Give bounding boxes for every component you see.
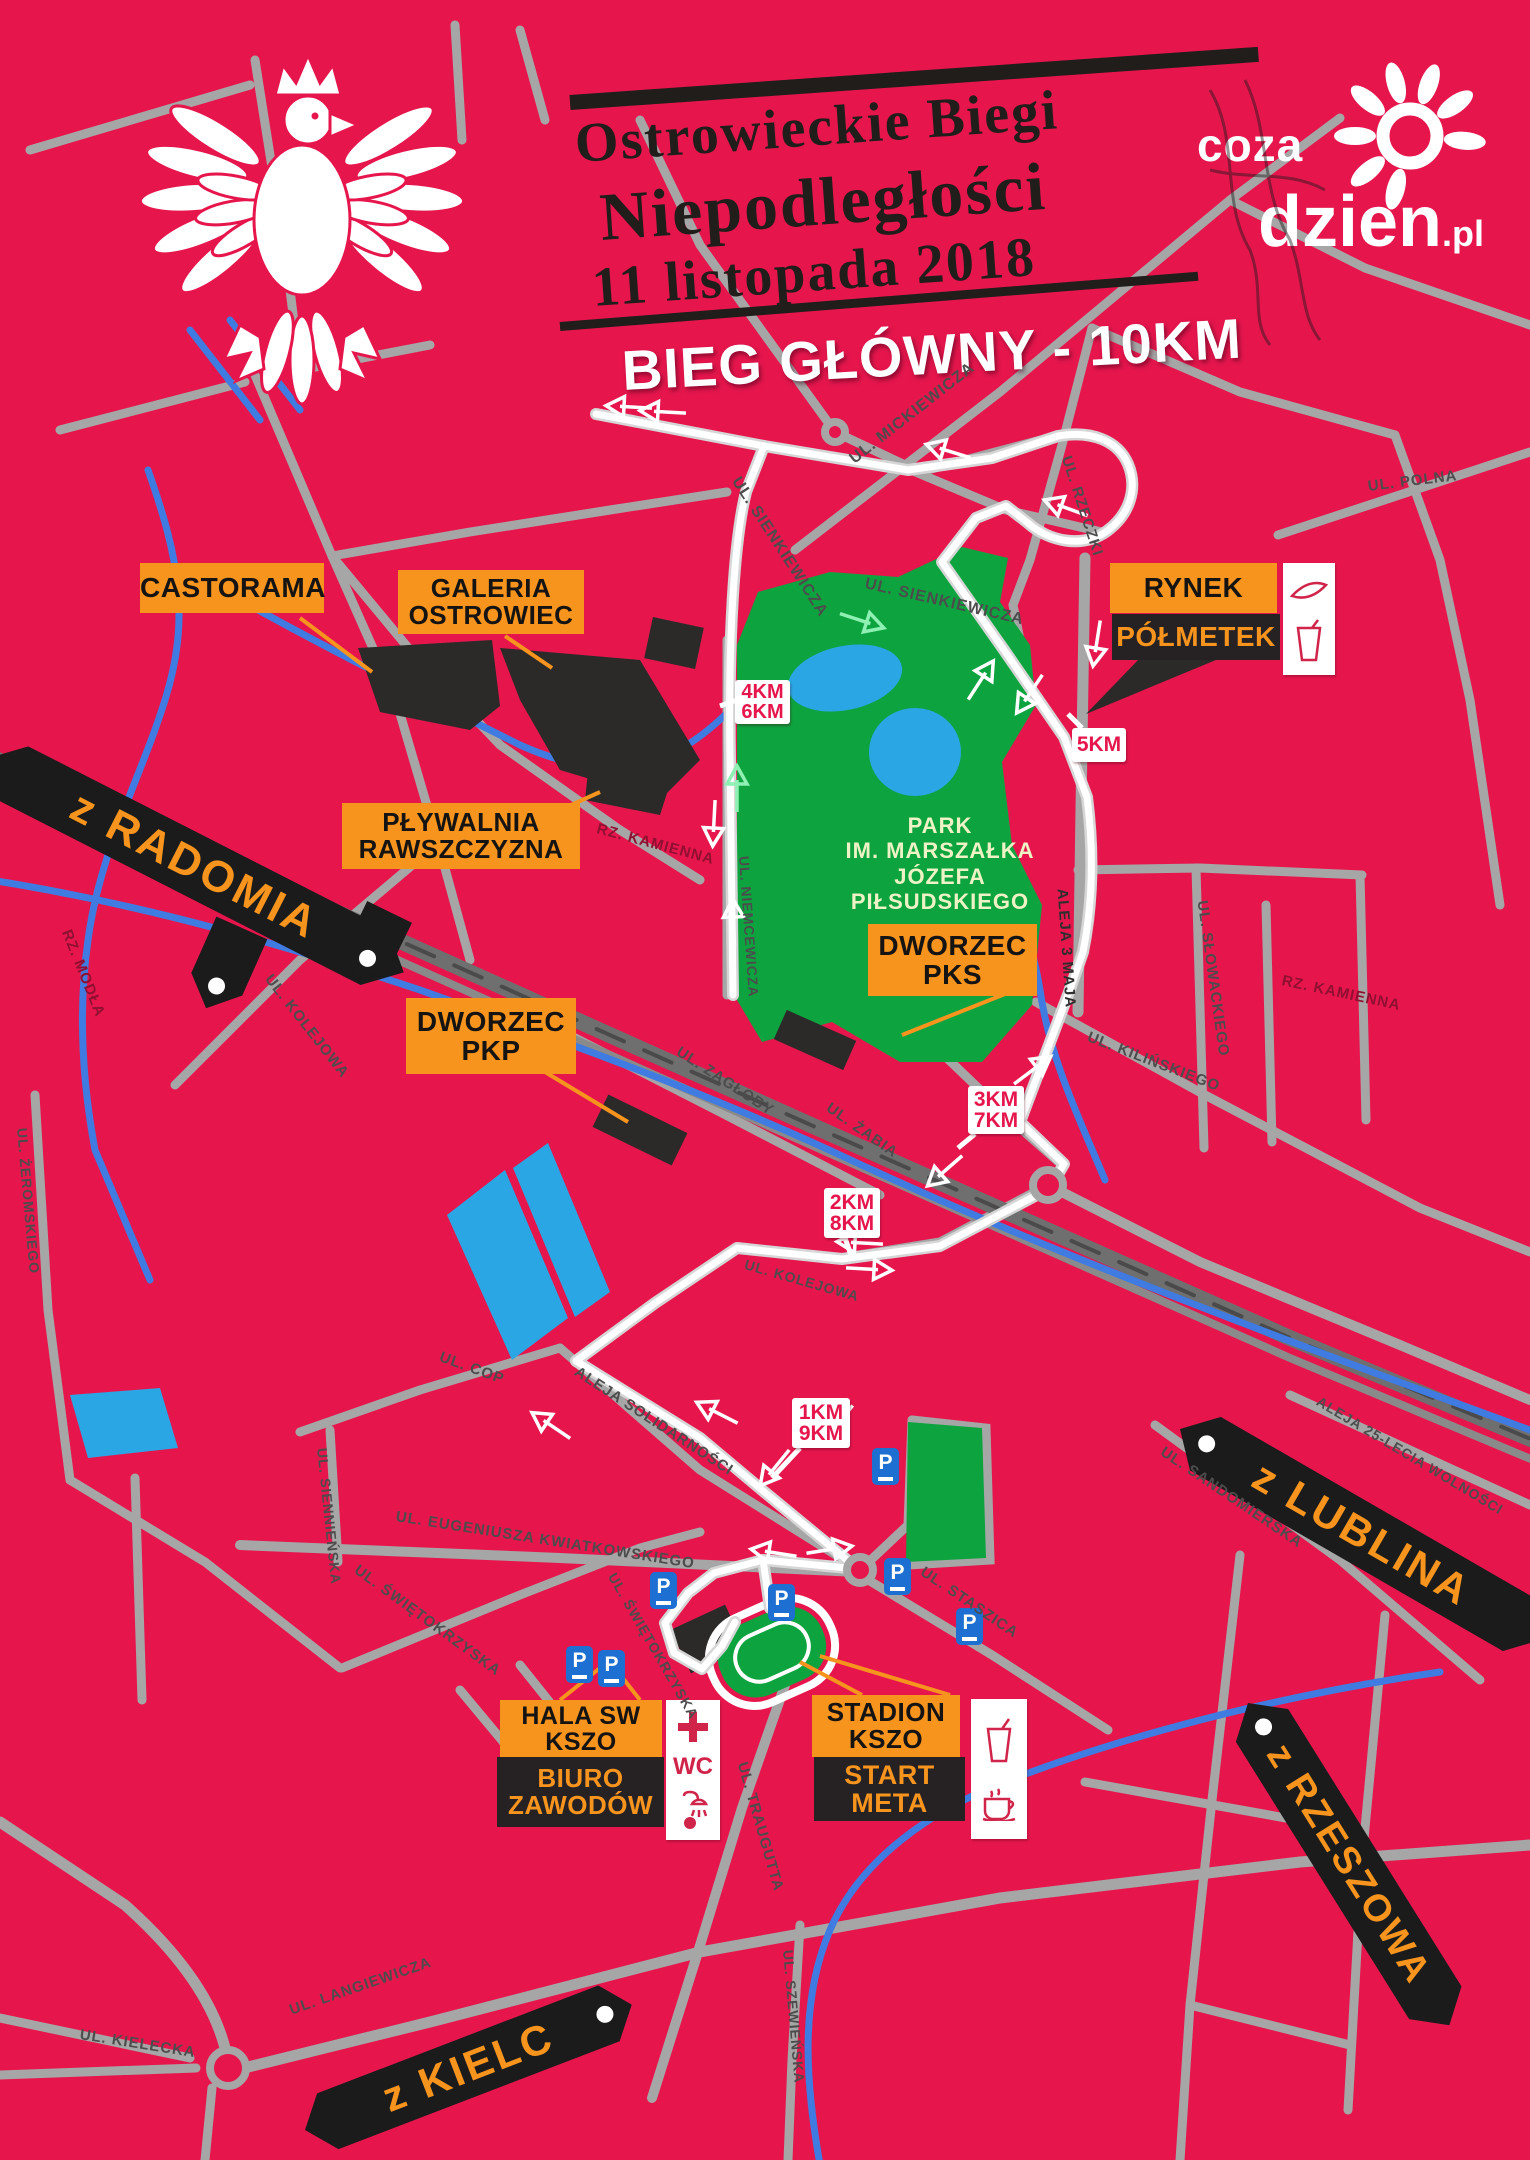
banner-hole xyxy=(1195,1432,1218,1455)
km-text: 1KM xyxy=(792,1402,850,1423)
banner-hole xyxy=(356,947,379,970)
km-marker-1-9: 1KM 9KM xyxy=(792,1398,850,1448)
shower-icon xyxy=(678,1790,708,1830)
poi-galeria-ostrowiec: GALERIA OSTROWIEC xyxy=(398,570,584,634)
km-marker-3-7: 3KM 7KM xyxy=(968,1086,1024,1134)
castorama-building xyxy=(358,640,500,730)
wc-label: WC xyxy=(673,1753,713,1781)
banner-hole xyxy=(594,2003,616,2025)
lakes-layer xyxy=(70,1143,610,1458)
parking-icon: P xyxy=(598,1650,625,1687)
km-text: 2KM xyxy=(824,1192,880,1213)
poi-castorama: CASTORAMA xyxy=(140,563,324,613)
poi-polmetek: PÓŁMETEK xyxy=(1112,614,1280,660)
parking-icon: P xyxy=(566,1646,593,1683)
tea-mug-icon xyxy=(979,1787,1019,1821)
poi-rynek-text: RYNEK xyxy=(1110,573,1277,602)
parking-icon: P xyxy=(872,1448,899,1485)
poi-biuro-line1: BIURO xyxy=(497,1765,664,1792)
banana-icon xyxy=(1289,576,1329,604)
poi-biuro-zawodow: BIURO ZAWODÓW xyxy=(497,1757,664,1827)
parking-letter: P xyxy=(572,1649,586,1672)
beak-icon xyxy=(330,113,358,137)
poi-galeria-line1: GALERIA xyxy=(398,575,584,602)
banner-hole xyxy=(1252,1715,1275,1738)
poi-hala-line2: KSZO xyxy=(500,1729,662,1755)
poi-dworzec-pkp: DWORZEC PKP xyxy=(406,998,576,1074)
eagle-eye xyxy=(312,113,319,120)
polish-eagle-emblem xyxy=(80,25,530,455)
parking-icon: P xyxy=(884,1558,911,1595)
parking-icon: P xyxy=(768,1584,795,1621)
crown-icon xyxy=(275,55,341,95)
poi-rynek: RYNEK xyxy=(1110,563,1277,613)
parking-letter: P xyxy=(774,1587,788,1610)
poi-start-meta: START META xyxy=(814,1757,965,1821)
km-marker-5: 5KM xyxy=(1072,728,1126,762)
poi-castorama-text: CASTORAMA xyxy=(140,573,324,602)
parking-letter: P xyxy=(656,1575,670,1598)
poi-hala-kszo: HALA SW KSZO xyxy=(500,1700,662,1757)
drink-cup-icon xyxy=(1294,618,1324,662)
km-text: 3KM xyxy=(968,1089,1024,1110)
park-label-line3: JÓZEFA PIŁSUDSKIEGO xyxy=(810,864,1070,915)
poi-plywalnia-line1: PŁYWALNIA xyxy=(342,809,580,836)
logo-suffix: .pl xyxy=(1442,213,1484,254)
km-text: 6KM xyxy=(735,702,790,722)
park-label-line2: IM. MARSZAŁKA xyxy=(810,838,1070,863)
poi-galeria-line2: OSTROWIEC xyxy=(398,602,584,629)
parking-letter: P xyxy=(878,1451,892,1474)
km-text: 8KM xyxy=(824,1213,880,1234)
poi-pks-line2: PKS xyxy=(868,960,1037,989)
start-refreshment-box xyxy=(971,1699,1027,1839)
eagle-head xyxy=(284,96,332,144)
poi-dworzec-pks: DWORZEC PKS xyxy=(868,924,1037,996)
sketch-eagle-watermark xyxy=(1150,50,1410,350)
poi-start-line1: START xyxy=(814,1761,965,1789)
km-text: 5KM xyxy=(1072,734,1126,755)
km-marker-4-6: 4KM 6KM xyxy=(735,680,790,724)
refreshment-point-box xyxy=(1283,563,1335,675)
parking-letter: P xyxy=(890,1561,904,1584)
poi-pkp-line1: DWORZEC xyxy=(406,1007,576,1036)
poi-plywalnia-line2: RAWSZCZYZNA xyxy=(342,836,580,863)
pkp-station-building xyxy=(593,1095,688,1166)
banner-hole xyxy=(205,975,227,997)
poi-stadion-kszo: STADION KSZO xyxy=(812,1695,960,1757)
parking-icon: P xyxy=(650,1572,677,1609)
poi-pkp-line2: PKP xyxy=(406,1036,576,1065)
poi-pks-line1: DWORZEC xyxy=(868,931,1037,960)
race-map-poster: Ostrowieckie Biegi Niepodległości 11 lis… xyxy=(0,0,1530,2160)
poi-biuro-line2: ZAWODÓW xyxy=(497,1792,664,1819)
green-field-area xyxy=(906,1422,986,1562)
poi-start-line2: META xyxy=(814,1789,965,1817)
poi-stadion-line2: KSZO xyxy=(812,1726,960,1753)
km-text: 4KM xyxy=(735,682,790,702)
km-text: 9KM xyxy=(792,1423,850,1444)
km-text: 7KM xyxy=(968,1110,1024,1131)
poi-hala-line1: HALA SW xyxy=(500,1703,662,1729)
water-cup-icon xyxy=(984,1717,1014,1763)
poi-polmetek-text: PÓŁMETEK xyxy=(1112,622,1280,651)
km-marker-2-8: 2KM 8KM xyxy=(824,1188,880,1238)
poi-plywalnia: PŁYWALNIA RAWSZCZYZNA xyxy=(342,803,580,869)
poi-stadion-line1: STADION xyxy=(812,1699,960,1726)
wc-services-box: WC xyxy=(666,1700,720,1840)
parking-letter: P xyxy=(604,1653,618,1676)
park-name-label: PARK IM. MARSZAŁKA JÓZEFA PIŁSUDSKIEGO xyxy=(810,813,1070,914)
park-label-line1: PARK xyxy=(810,813,1070,838)
